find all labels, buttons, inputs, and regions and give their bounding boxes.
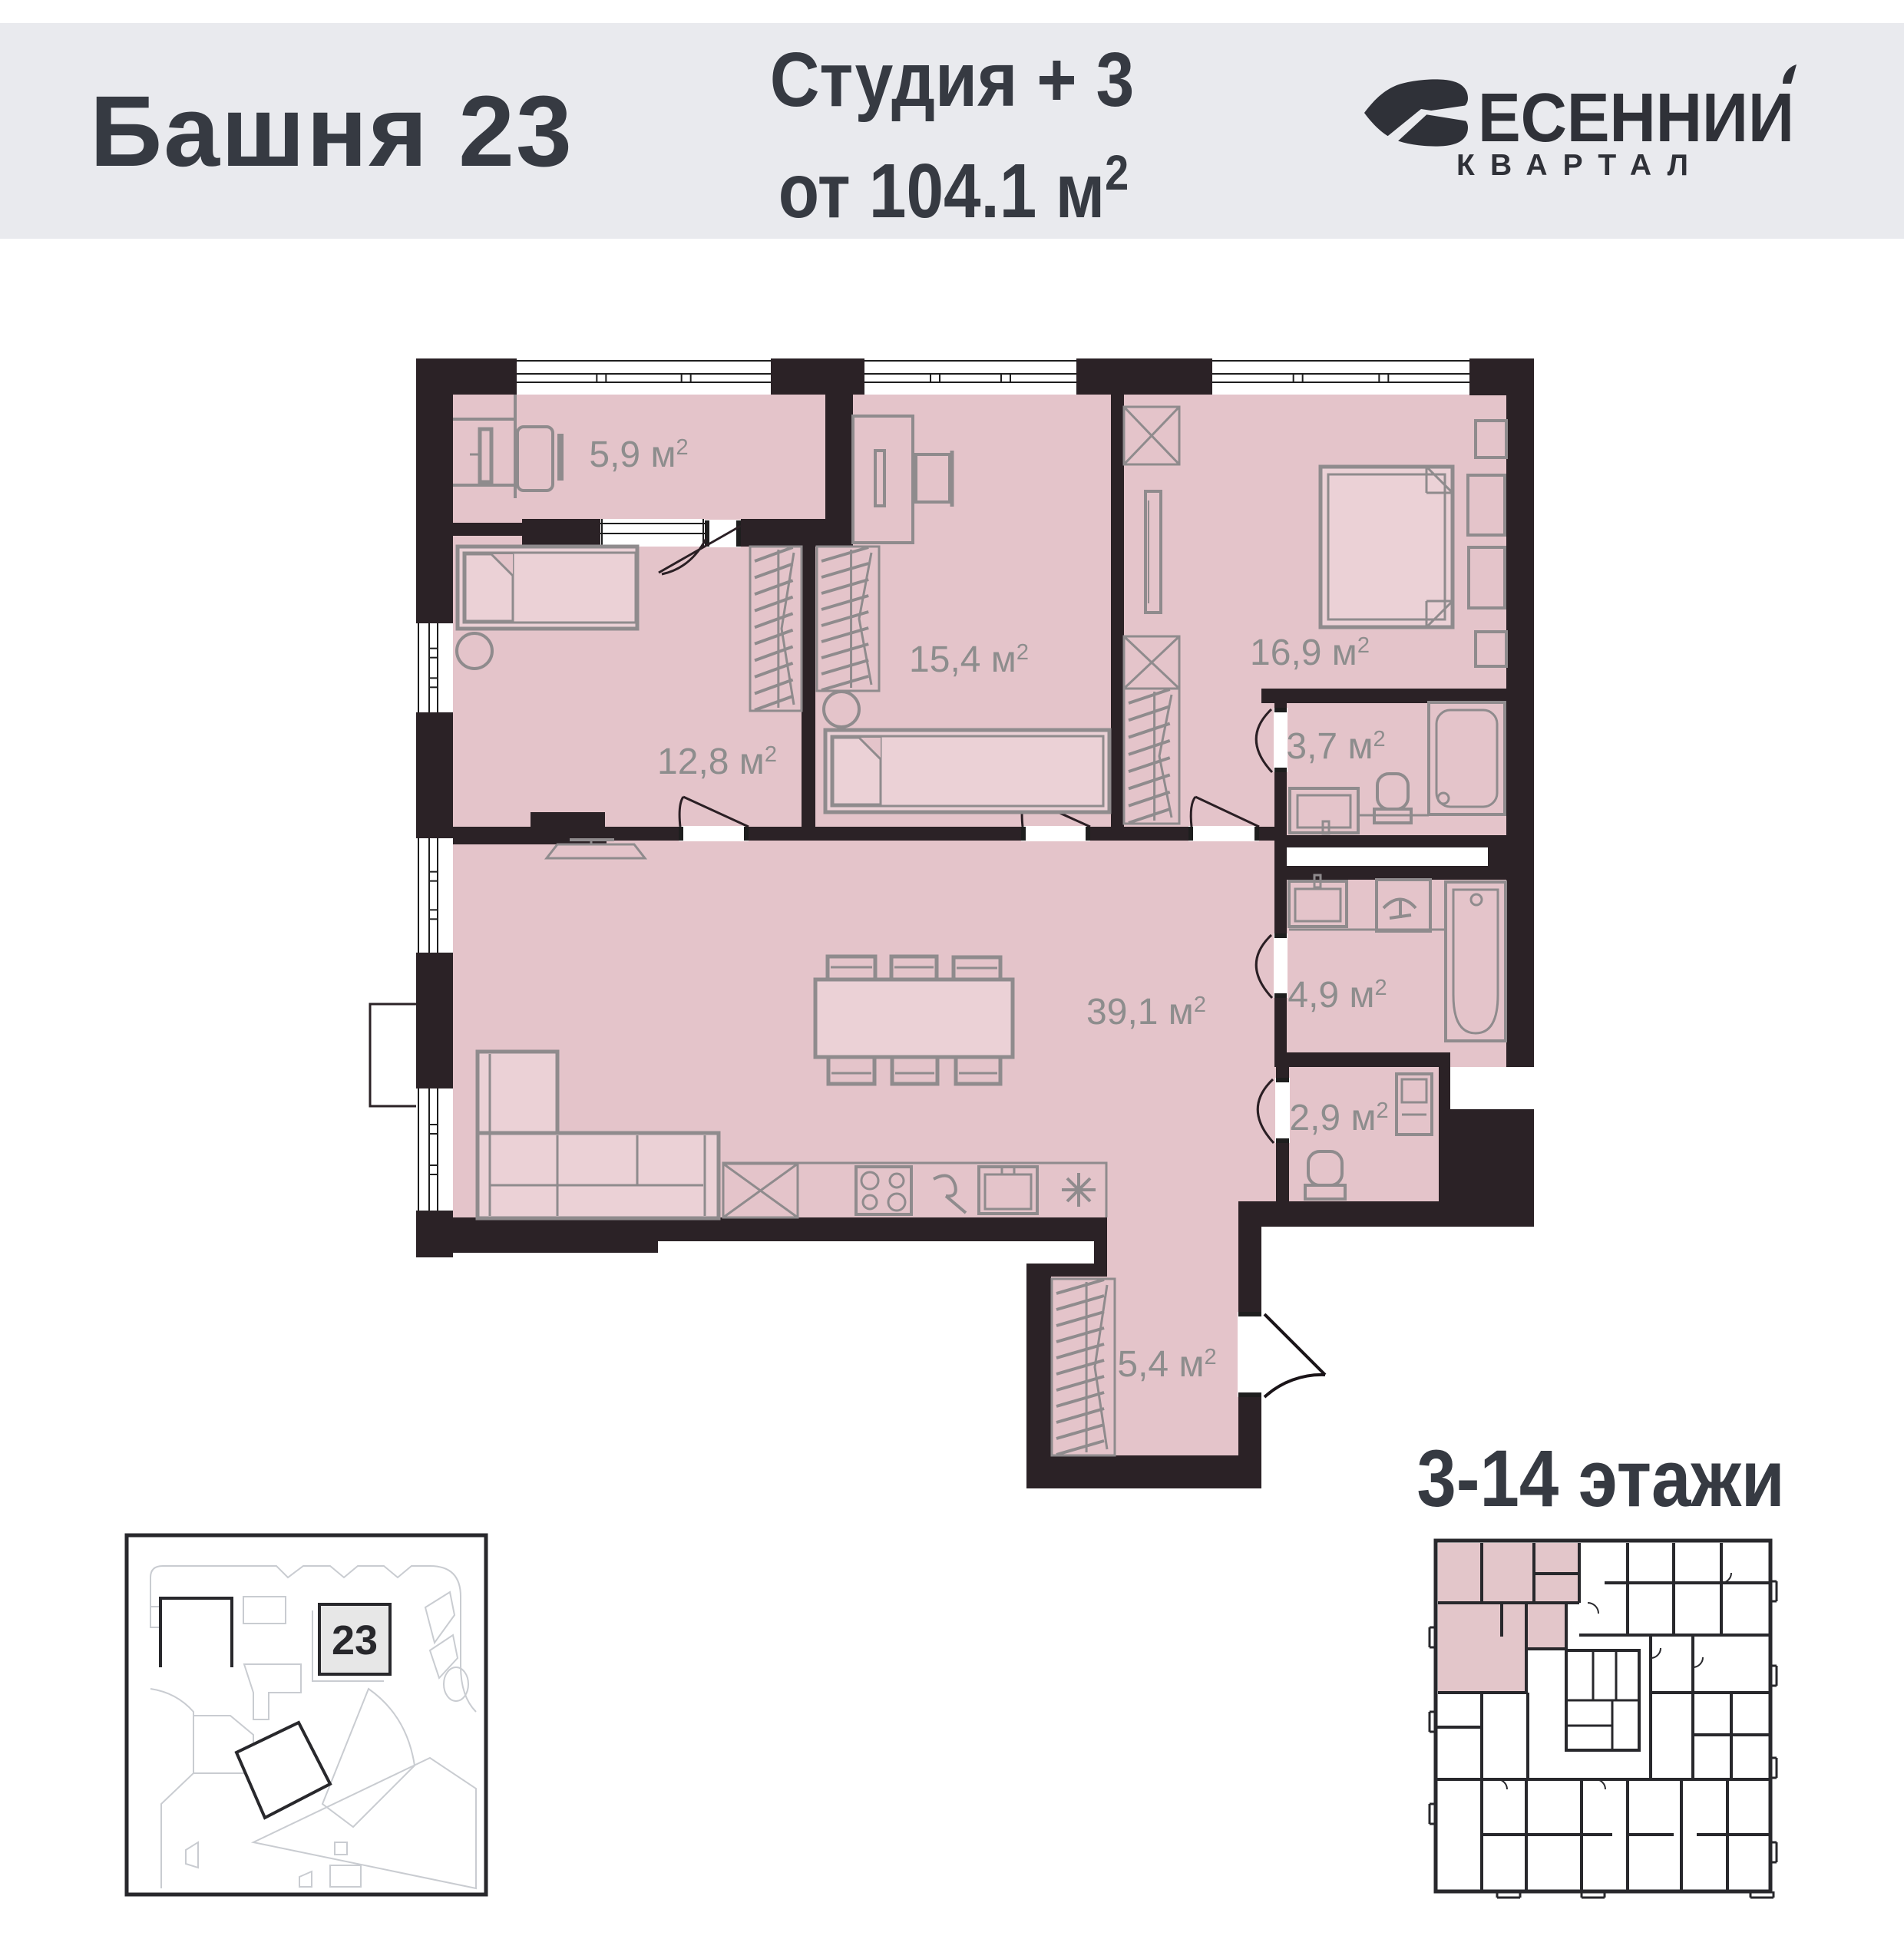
svg-text:23: 23 (332, 1617, 378, 1663)
svg-text:12,8 м2: 12,8 м2 (657, 742, 777, 782)
svg-text:15,4 м2: 15,4 м2 (909, 639, 1029, 680)
svg-text:от 104.1 м2: от 104.1 м2 (778, 145, 1129, 233)
svg-text:3-14 этажи: 3-14 этажи (1416, 1432, 1784, 1523)
svg-text:5,9 м2: 5,9 м2 (589, 434, 688, 475)
svg-text:2,9 м2: 2,9 м2 (1289, 1098, 1388, 1138)
svg-text:39,1 м2: 39,1 м2 (1086, 992, 1206, 1032)
svg-text:Студия + 3: Студия + 3 (770, 37, 1135, 123)
svg-text:5,4 м2: 5,4 м2 (1117, 1344, 1216, 1385)
svg-text:ЕСЕННИИ: ЕСЕННИИ (1478, 80, 1794, 157)
svg-text:4,9 м2: 4,9 м2 (1288, 975, 1387, 1016)
svg-text:3,7 м2: 3,7 м2 (1286, 726, 1385, 767)
svg-text:Башня 23: Башня 23 (90, 74, 574, 187)
svg-text:16,9 м2: 16,9 м2 (1250, 633, 1370, 673)
